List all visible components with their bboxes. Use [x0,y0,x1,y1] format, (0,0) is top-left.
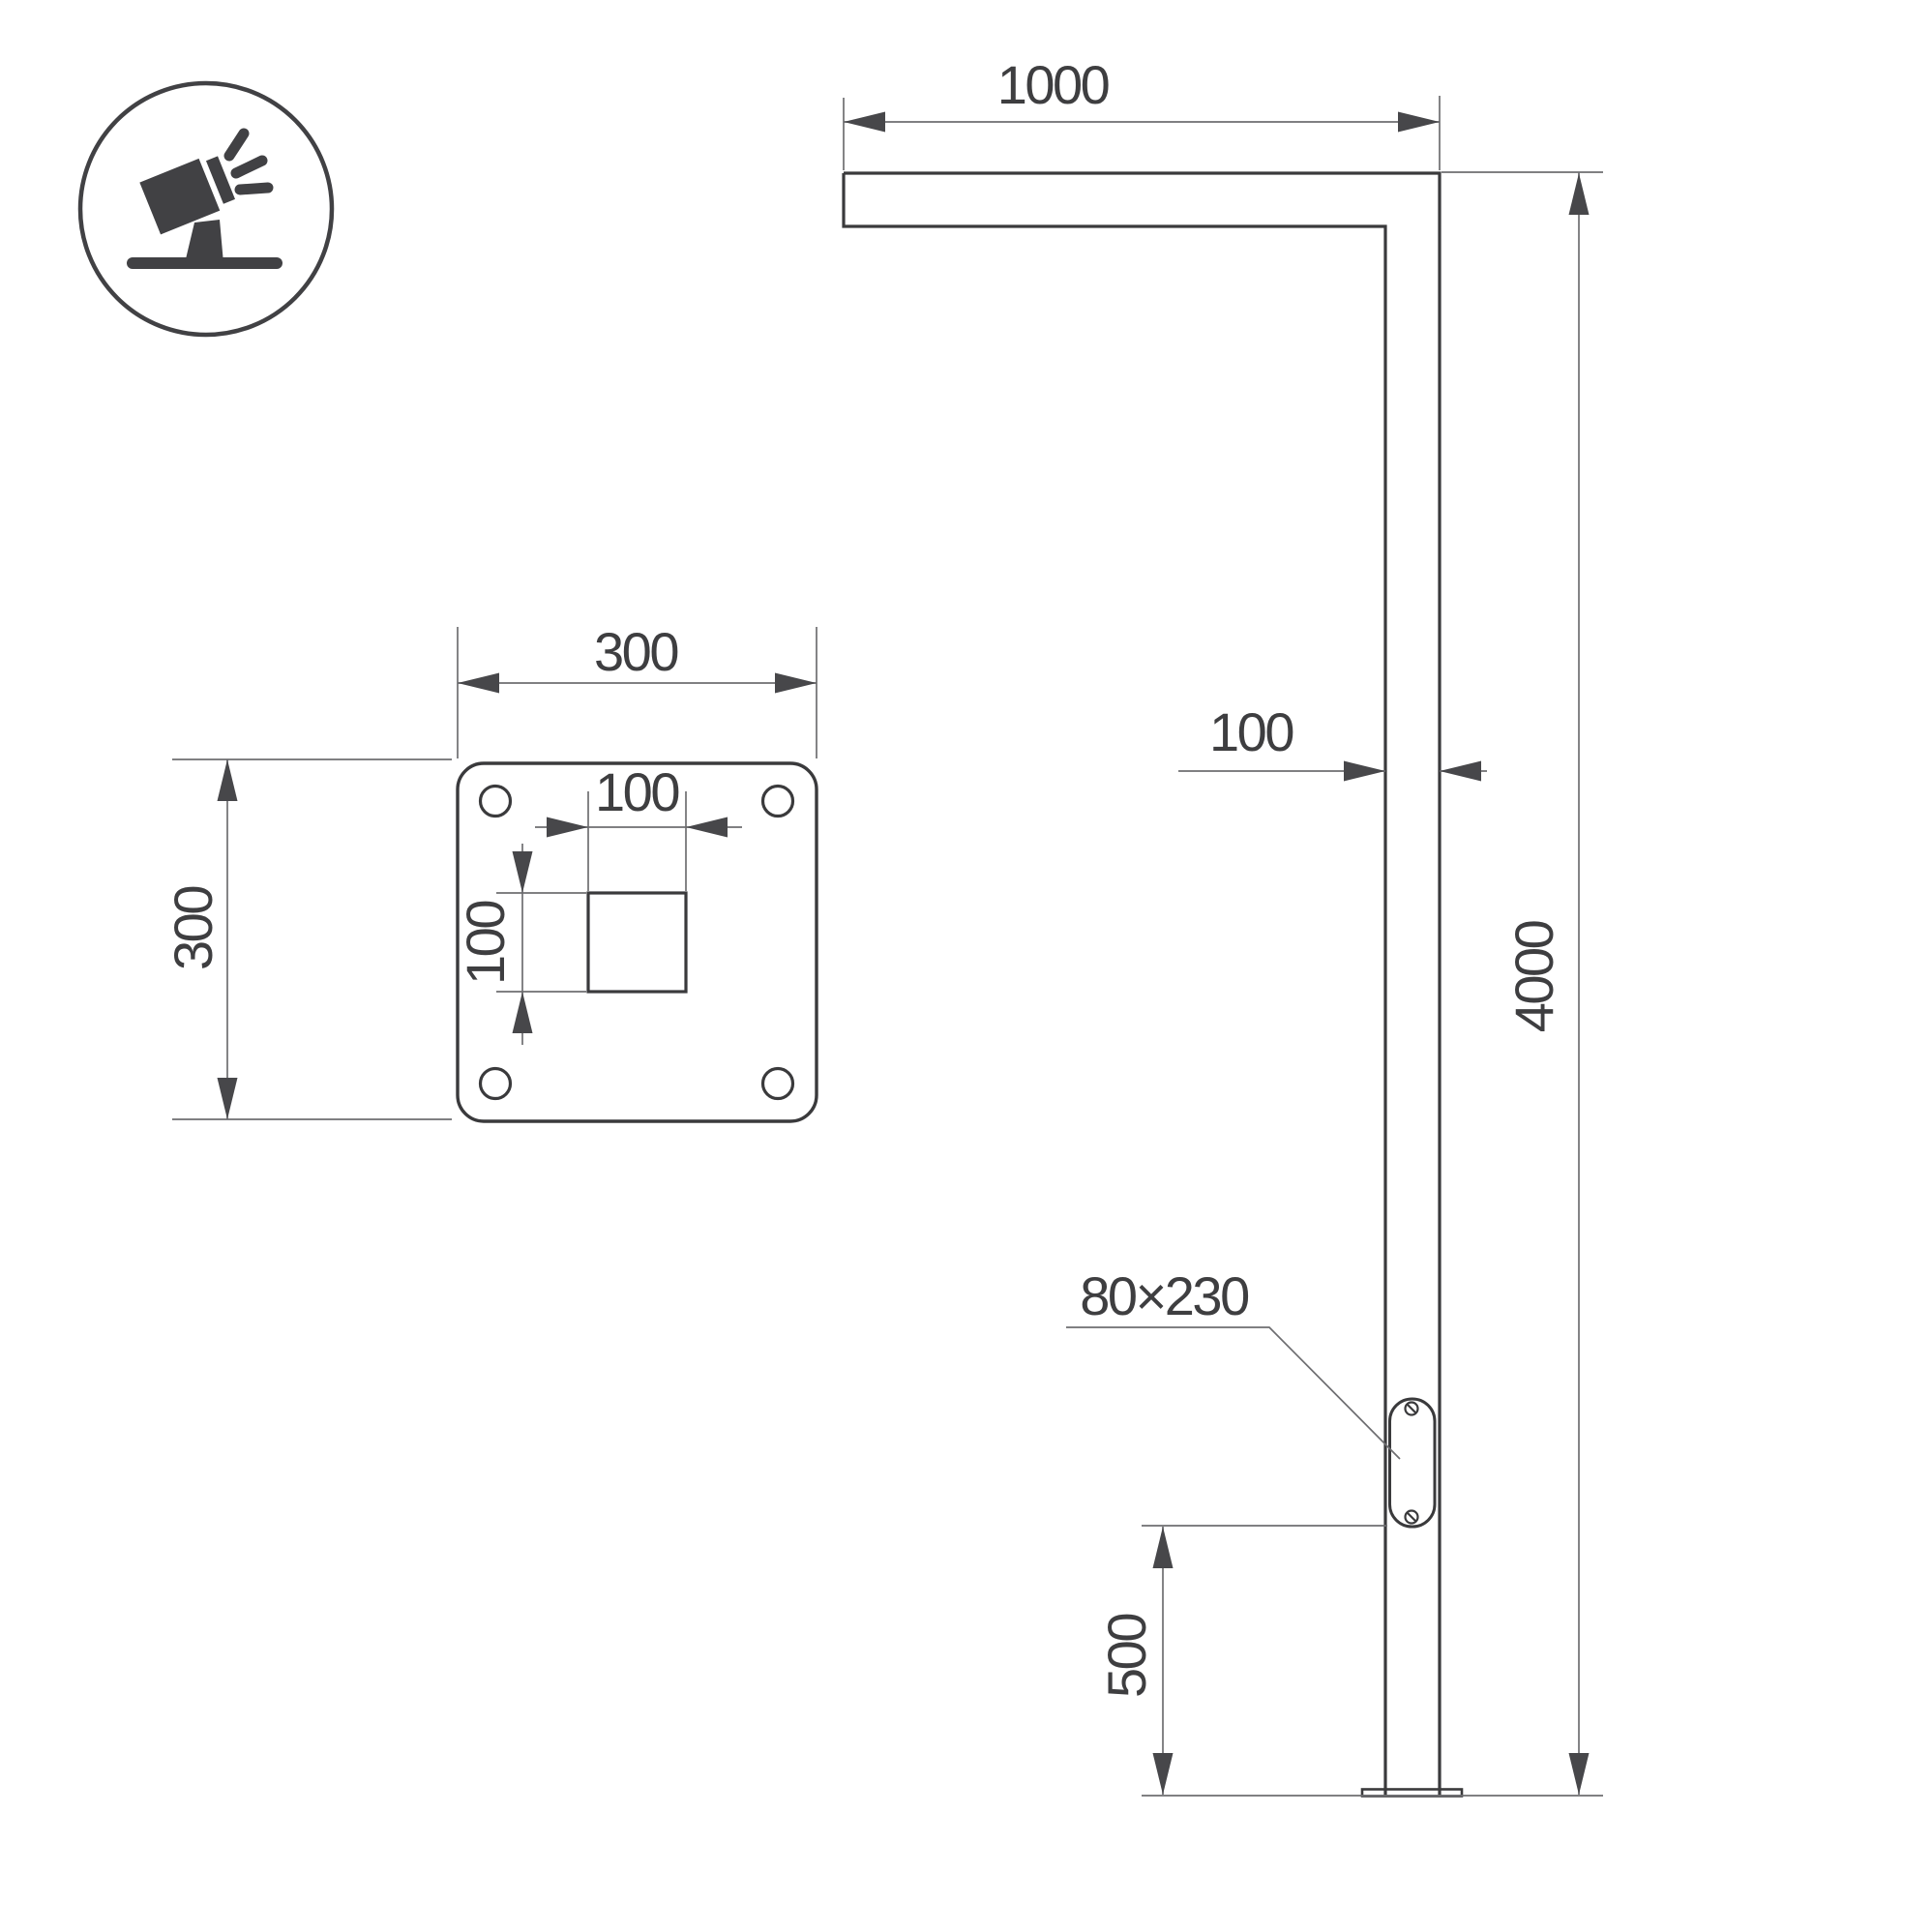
hole-height-dim-label: 100 [459,902,513,985]
drawing-sheet [0,0,1932,1932]
drawing-canvas: 1000 100 4000 80×230 500 300 300 100 100 [0,0,1932,1932]
pole-and-arm-outline [844,173,1440,1796]
icon-stand [185,220,223,263]
icon-light-rays [229,134,268,190]
icon-floodlight-head [139,152,237,235]
pole-elevation-view [844,96,1603,1797]
arm-length-dim-lines [844,96,1440,170]
base-plate-view [172,627,817,1121]
tilted-floodlight-icon [80,83,332,335]
access-door [1390,1399,1436,1527]
door-size-label: 80×230 [1080,1269,1247,1323]
pole-height-dim-label: 4000 [1507,922,1561,1033]
hole-width-dim-label: 100 [595,765,678,819]
plate-height-dim-label: 300 [166,887,221,970]
pole-width-dim-label: 100 [1209,705,1293,759]
door-size-leader-line [1066,1327,1400,1459]
pole-width-dim-arrows [1344,761,1481,782]
arm-length-dim-label: 1000 [997,58,1109,112]
door-height-dim-lines [1142,1526,1387,1795]
plate-width-dim-label: 300 [594,625,677,679]
door-bottom-height-dim-label: 500 [1100,1615,1154,1698]
